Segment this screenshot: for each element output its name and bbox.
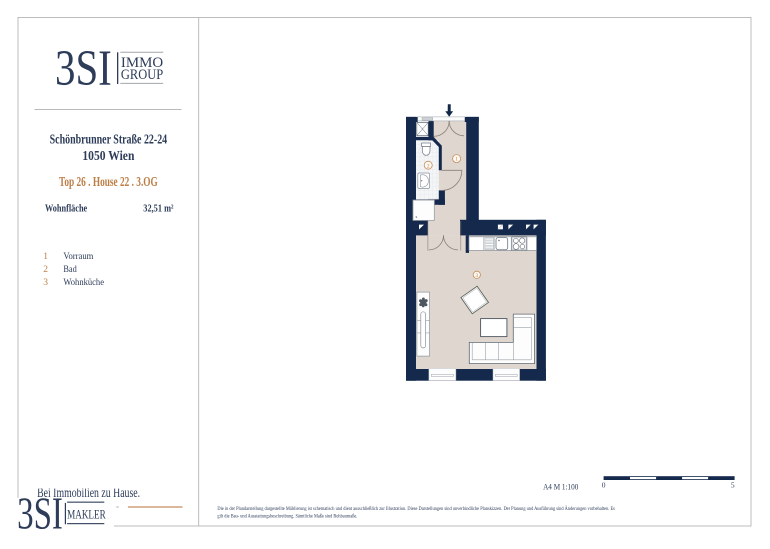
svg-text:1050 Wien: 1050 Wien: [82, 149, 134, 164]
svg-text:Schönbrunner Straße 22-24: Schönbrunner Straße 22-24: [50, 133, 167, 148]
svg-text:Die in der Plandarstellung dar: Die in der Plandarstellung dargestellte …: [217, 506, 615, 512]
svg-text:3: 3: [43, 278, 48, 288]
svg-text:Bad: Bad: [63, 265, 77, 275]
svg-text:2: 2: [43, 265, 48, 275]
svg-text:gilt die Bau- und Ausstattungs: gilt die Bau- und Ausstattungsbeschreibu…: [217, 514, 357, 519]
svg-text:MAKLER: MAKLER: [67, 507, 106, 522]
svg-text:32,51 m²: 32,51 m²: [143, 203, 174, 215]
svg-text:1: 1: [43, 252, 48, 262]
svg-text:Vorraum: Vorraum: [63, 252, 94, 262]
svg-text:Top 26 . House 22 . 3.OG: Top 26 . House 22 . 3.OG: [59, 175, 158, 190]
svg-text:3SI: 3SI: [55, 41, 112, 97]
svg-text:A4 M 1:100: A4 M 1:100: [543, 482, 578, 492]
svg-text:Wohnfläche: Wohnfläche: [45, 203, 87, 215]
svg-text:2: 2: [427, 163, 430, 169]
svg-text:5: 5: [731, 480, 735, 489]
svg-text:1: 1: [455, 157, 458, 163]
svg-text:3SI: 3SI: [17, 488, 63, 539]
svg-text:3: 3: [475, 273, 478, 279]
svg-text:GROUP: GROUP: [121, 67, 163, 83]
svg-text:0: 0: [602, 480, 606, 489]
svg-text:Wohnküche: Wohnküche: [63, 278, 104, 288]
